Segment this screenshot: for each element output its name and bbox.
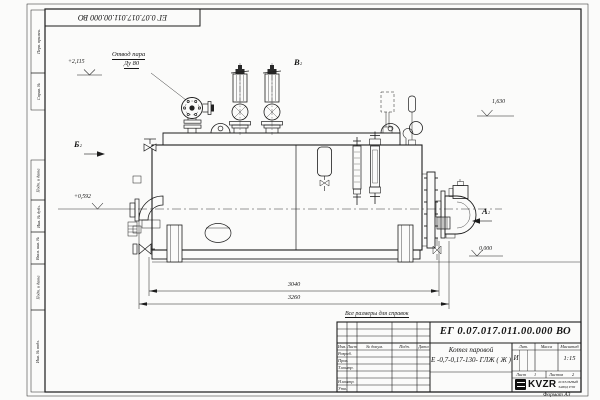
dimension-3260: 3260: [274, 295, 314, 302]
row-nkontr: Н.контр.: [338, 380, 355, 385]
margin-cell-inv-dubl: Инв. № дубл.: [31, 200, 45, 232]
col-izm: Изм.: [337, 345, 347, 350]
margin-cell-podp-data-1: Подп. и дата: [31, 160, 45, 200]
safety-valve-2: [262, 63, 283, 135]
lit-value: И: [514, 355, 519, 362]
format-label: Формат А3: [543, 393, 570, 399]
safety-valve-1: [230, 63, 251, 135]
manhole: [205, 224, 231, 243]
sheet-value: 1: [534, 373, 536, 378]
margin-cell-vzam-inv: Взам. инв. №: [31, 232, 45, 264]
boiler-shell: [138, 133, 580, 262]
reference-note: Все размеры для справок: [345, 311, 409, 318]
view-label-a: А2: [482, 207, 490, 216]
front-flange-band: [422, 172, 438, 248]
callout-leader: [151, 73, 186, 100]
elevation-marks: [58, 70, 514, 257]
row-razrab: Разраб.: [338, 352, 352, 357]
product-designation: Е -0,7-0,17-130- ГЛЖ ( Ж ): [430, 357, 512, 364]
product-name: Котел паровой: [430, 347, 512, 354]
elevation-2115: +2,115: [68, 59, 85, 65]
margin-cell-inv-podl: Инв. № подл.: [31, 310, 45, 392]
company-logo: KVZR КОТЕЛЬНЫЙ ЗАВОД РЭП: [515, 379, 578, 390]
pressure-gauge: [410, 122, 423, 135]
elevation-0000: 0,000: [479, 246, 492, 252]
thermometer: [409, 96, 416, 112]
col-podp: Подп.: [392, 345, 417, 350]
dimension-3040: 3040: [274, 282, 314, 289]
callout-steam-outlet-line2: Ду 80: [124, 61, 139, 69]
kvzr-logo-subtext: КОТЕЛЬНЫЙ ЗАВОД РЭП: [558, 380, 577, 388]
margin-cell-perv-primen: Перв. примен.: [31, 10, 45, 73]
sheet-label: Лист: [516, 373, 526, 378]
view-arrows: [84, 151, 492, 223]
steam-outlet: [151, 73, 214, 133]
gauge-glass-2: [371, 146, 380, 187]
row-tkontr: Т.контр.: [338, 366, 354, 371]
elevation-1630: 1,630: [492, 99, 505, 105]
masshtab-header: Масштаб: [558, 345, 581, 350]
col-doc: № докум.: [357, 345, 392, 350]
kvzr-logo-text: KVZR: [528, 379, 556, 390]
view-label-b: Б2: [74, 140, 82, 149]
sheets-label: Листов: [549, 373, 563, 378]
doc-number: ЕГ 0.07.017.011.00.000 ВО: [430, 326, 581, 337]
scale-value: 1:15: [558, 356, 581, 363]
dashed-outline-box: [381, 92, 394, 112]
top-instruments: [381, 92, 423, 145]
lit-header: Лит.: [512, 345, 535, 350]
row-prov: Пров.: [338, 359, 348, 364]
burner: [433, 179, 476, 260]
support-legs: [167, 225, 413, 262]
water-column: [318, 147, 332, 176]
col-data: Дата: [417, 345, 430, 350]
sheets-value: 2: [572, 373, 574, 378]
row-utv: Утв.: [338, 387, 347, 392]
drawing-sheet: ЕГ 0.07.017.011.00.000 ВО Перв. примен. …: [0, 0, 600, 400]
margin-cell-podp-data-2: Подп. и дата: [31, 264, 45, 310]
elevation-0592: +0,592: [74, 194, 91, 200]
rotated-doc-number: ЕГ 0.07.017.011.00.000 ВО: [45, 9, 200, 26]
gauge-glass-1: [353, 146, 361, 189]
margin-cell-sprav-no: Справ. №: [31, 73, 45, 110]
water-level-gauges: [318, 132, 381, 206]
massa-header: Масса: [535, 345, 558, 350]
view-label-v: В2: [294, 58, 302, 67]
sheet-frame: [27, 4, 588, 396]
col-list: Лист: [347, 345, 357, 350]
kvzr-logo-icon: [515, 379, 526, 390]
